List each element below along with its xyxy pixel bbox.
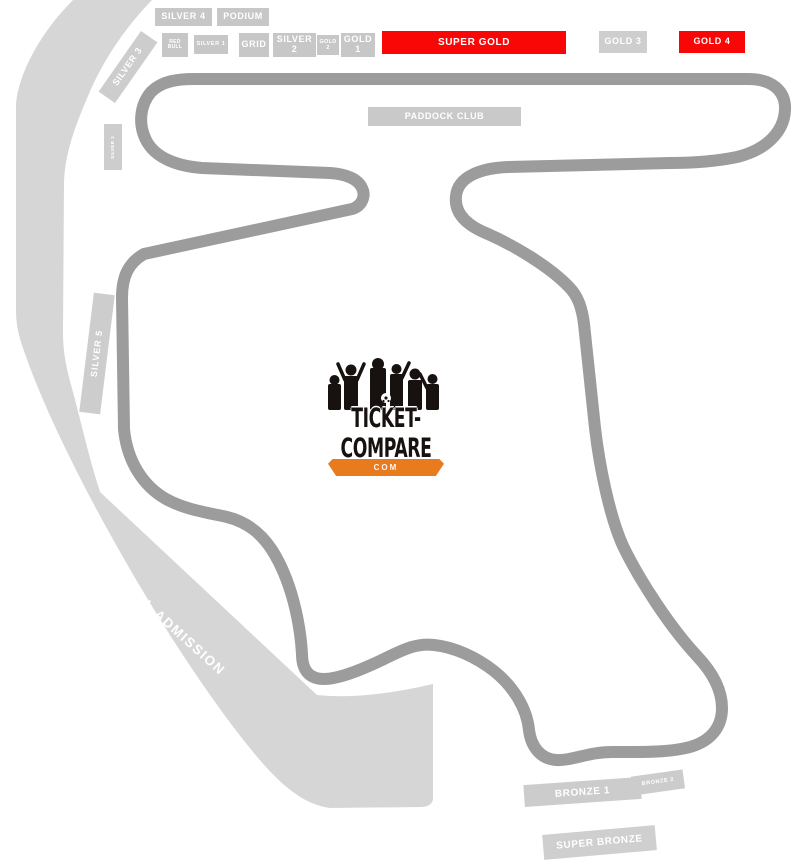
stand-silver-3-small-label: SILVER 3	[111, 136, 116, 159]
stand-silver-3-small[interactable]: SILVER 3	[104, 124, 122, 170]
logo-tld-text: COM	[374, 463, 399, 472]
logo-ribbon: COM	[328, 459, 444, 476]
stand-gold-4[interactable]: GOLD 4	[679, 31, 745, 53]
stand-grid[interactable]: GRID	[239, 33, 269, 57]
stand-super-gold[interactable]: SUPER GOLD	[382, 31, 566, 54]
stand-gold-2[interactable]: GOLD 2	[317, 35, 339, 55]
stand-podium[interactable]: PODIUM	[217, 8, 269, 26]
circuit-seating-map: SILVER 4 PODIUM RED BULL SILVER 1 GRID S…	[0, 0, 800, 863]
logo-brand-text: TICKET-COMPARE	[315, 403, 456, 463]
ticket-compare-logo: TICKET-COMPARE COM	[300, 358, 472, 458]
stand-gold-3[interactable]: GOLD 3	[599, 31, 647, 53]
stand-red-bull[interactable]: RED BULL	[162, 33, 188, 57]
stand-silver-4[interactable]: SILVER 4	[155, 8, 212, 26]
stand-silver-2[interactable]: SILVER 2	[273, 33, 316, 57]
stand-paddock-club[interactable]: PADDOCK CLUB	[368, 107, 521, 126]
stand-silver-1[interactable]: SILVER 1	[194, 35, 228, 54]
stand-gold-1[interactable]: GOLD 1	[341, 33, 375, 57]
